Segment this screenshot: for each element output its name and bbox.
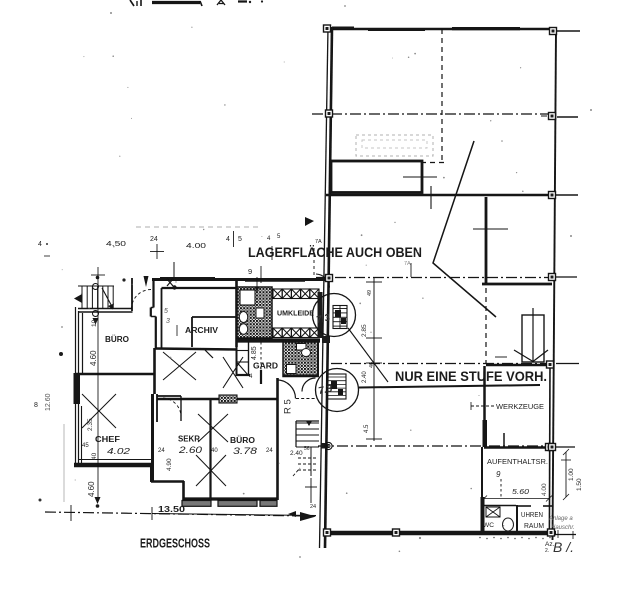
- svg-text:BÜRO: BÜRO: [105, 335, 129, 344]
- svg-text:40: 40: [211, 448, 218, 454]
- svg-text:GARD: GARD: [253, 361, 278, 371]
- svg-text:40: 40: [91, 452, 98, 460]
- svg-text:24: 24: [158, 448, 165, 454]
- svg-text:4.60: 4.60: [89, 350, 98, 366]
- svg-text:4: 4: [38, 241, 42, 248]
- svg-text:4.02: 4.02: [107, 446, 130, 456]
- svg-text:B /.: B /.: [553, 539, 574, 555]
- svg-text:4.90: 4.90: [166, 458, 173, 471]
- svg-text:49: 49: [367, 290, 373, 296]
- svg-text:10: 10: [91, 319, 98, 327]
- svg-text:4: 4: [226, 236, 230, 243]
- svg-text:2.: 2.: [545, 548, 549, 554]
- svg-text:3: 3: [166, 318, 170, 325]
- svg-text:2.85: 2.85: [361, 324, 368, 337]
- svg-text:9: 9: [496, 470, 501, 479]
- svg-text:5: 5: [238, 236, 242, 243]
- svg-text:8: 8: [34, 402, 38, 409]
- svg-text:1.50: 1.50: [576, 478, 583, 491]
- svg-text:4.60: 4.60: [87, 481, 96, 497]
- svg-text:UMKLEIDE: UMKLEIDE: [277, 311, 314, 318]
- svg-text:24: 24: [266, 448, 273, 454]
- svg-text:56: 56: [304, 446, 310, 452]
- svg-text:4.50: 4.50: [106, 239, 126, 248]
- svg-text:AUFENTHALTSR.: AUFENTHALTSR.: [487, 457, 548, 466]
- svg-text:5.60: 5.60: [512, 487, 530, 496]
- svg-text:9: 9: [248, 267, 252, 276]
- svg-text:13.50: 13.50: [158, 504, 185, 514]
- svg-text:4.00: 4.00: [186, 241, 206, 250]
- svg-text:2.40: 2.40: [290, 450, 303, 457]
- svg-text:2.40: 2.40: [362, 371, 368, 383]
- svg-text:WERKZEUGE: WERKZEUGE: [496, 402, 544, 411]
- svg-text:WC: WC: [483, 523, 495, 529]
- svg-text:RAUM: RAUM: [524, 521, 544, 530]
- svg-text:4.00: 4.00: [541, 483, 548, 496]
- svg-text:NUR EINE STUFE VORH.: NUR EINE STUFE VORH.: [395, 368, 547, 384]
- svg-text:3.78: 3.78: [233, 446, 257, 456]
- svg-text:1.00: 1.00: [568, 468, 575, 481]
- svg-text:ERDGESCHOSS: ERDGESCHOSS: [140, 536, 210, 551]
- svg-text:7A: 7A: [404, 261, 411, 267]
- svg-text:SEKR: SEKR: [178, 435, 200, 444]
- svg-text:45: 45: [82, 443, 89, 449]
- svg-text:4.5: 4.5: [364, 424, 370, 433]
- svg-text:CHEF: CHEF: [95, 435, 120, 444]
- svg-text:LAGERFLÄCHE AUCH OBEN: LAGERFLÄCHE AUCH OBEN: [248, 244, 422, 260]
- svg-text:2.35: 2.35: [87, 418, 94, 431]
- svg-text:R 5: R 5: [283, 399, 294, 414]
- svg-text:2.60: 2.60: [178, 445, 202, 455]
- svg-text:24: 24: [310, 504, 316, 510]
- svg-text:24: 24: [150, 236, 158, 243]
- svg-text:5: 5: [164, 308, 168, 315]
- svg-text:UHREN: UHREN: [521, 510, 543, 519]
- svg-text:Anlage a: Anlage a: [548, 516, 573, 522]
- svg-text:4.85: 4.85: [251, 346, 258, 360]
- svg-text:12.60: 12.60: [45, 393, 52, 411]
- svg-text:BÜRO: BÜRO: [230, 436, 255, 445]
- svg-text:ARCHIV: ARCHIV: [185, 326, 219, 335]
